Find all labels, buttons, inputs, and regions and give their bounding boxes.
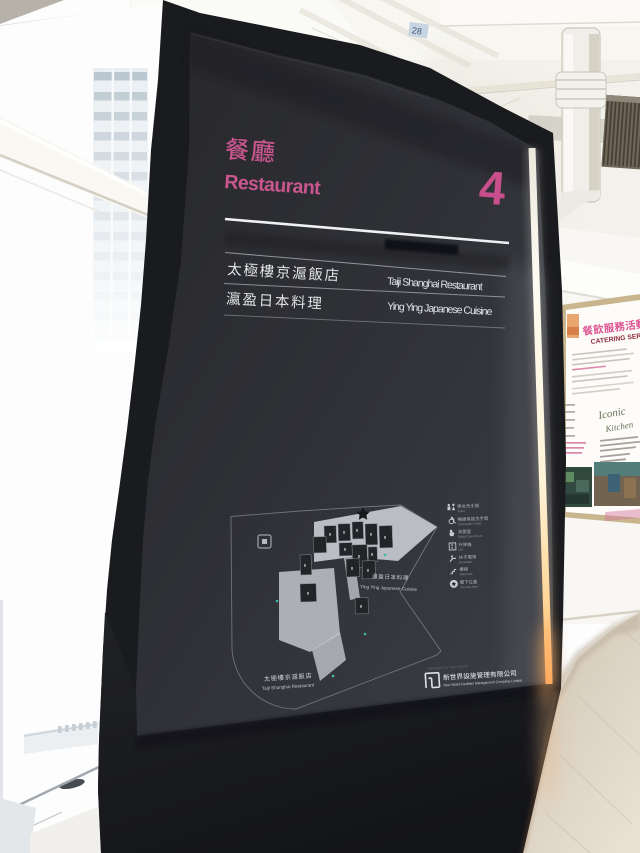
svg-text:Accessible Toilet: Accessible Toilet (458, 521, 482, 526)
svg-text:Baby Care Room: Baby Care Room (458, 534, 483, 539)
svg-text:Staircase: Staircase (459, 572, 473, 576)
svg-text:Lift: Lift (459, 548, 464, 552)
svg-text:4: 4 (477, 160, 507, 215)
svg-text:Escalator: Escalator (459, 560, 473, 564)
svg-text:Toilet: Toilet (457, 509, 465, 513)
svg-text:You are here: You are here (460, 585, 478, 590)
svg-text:28: 28 (411, 25, 422, 36)
